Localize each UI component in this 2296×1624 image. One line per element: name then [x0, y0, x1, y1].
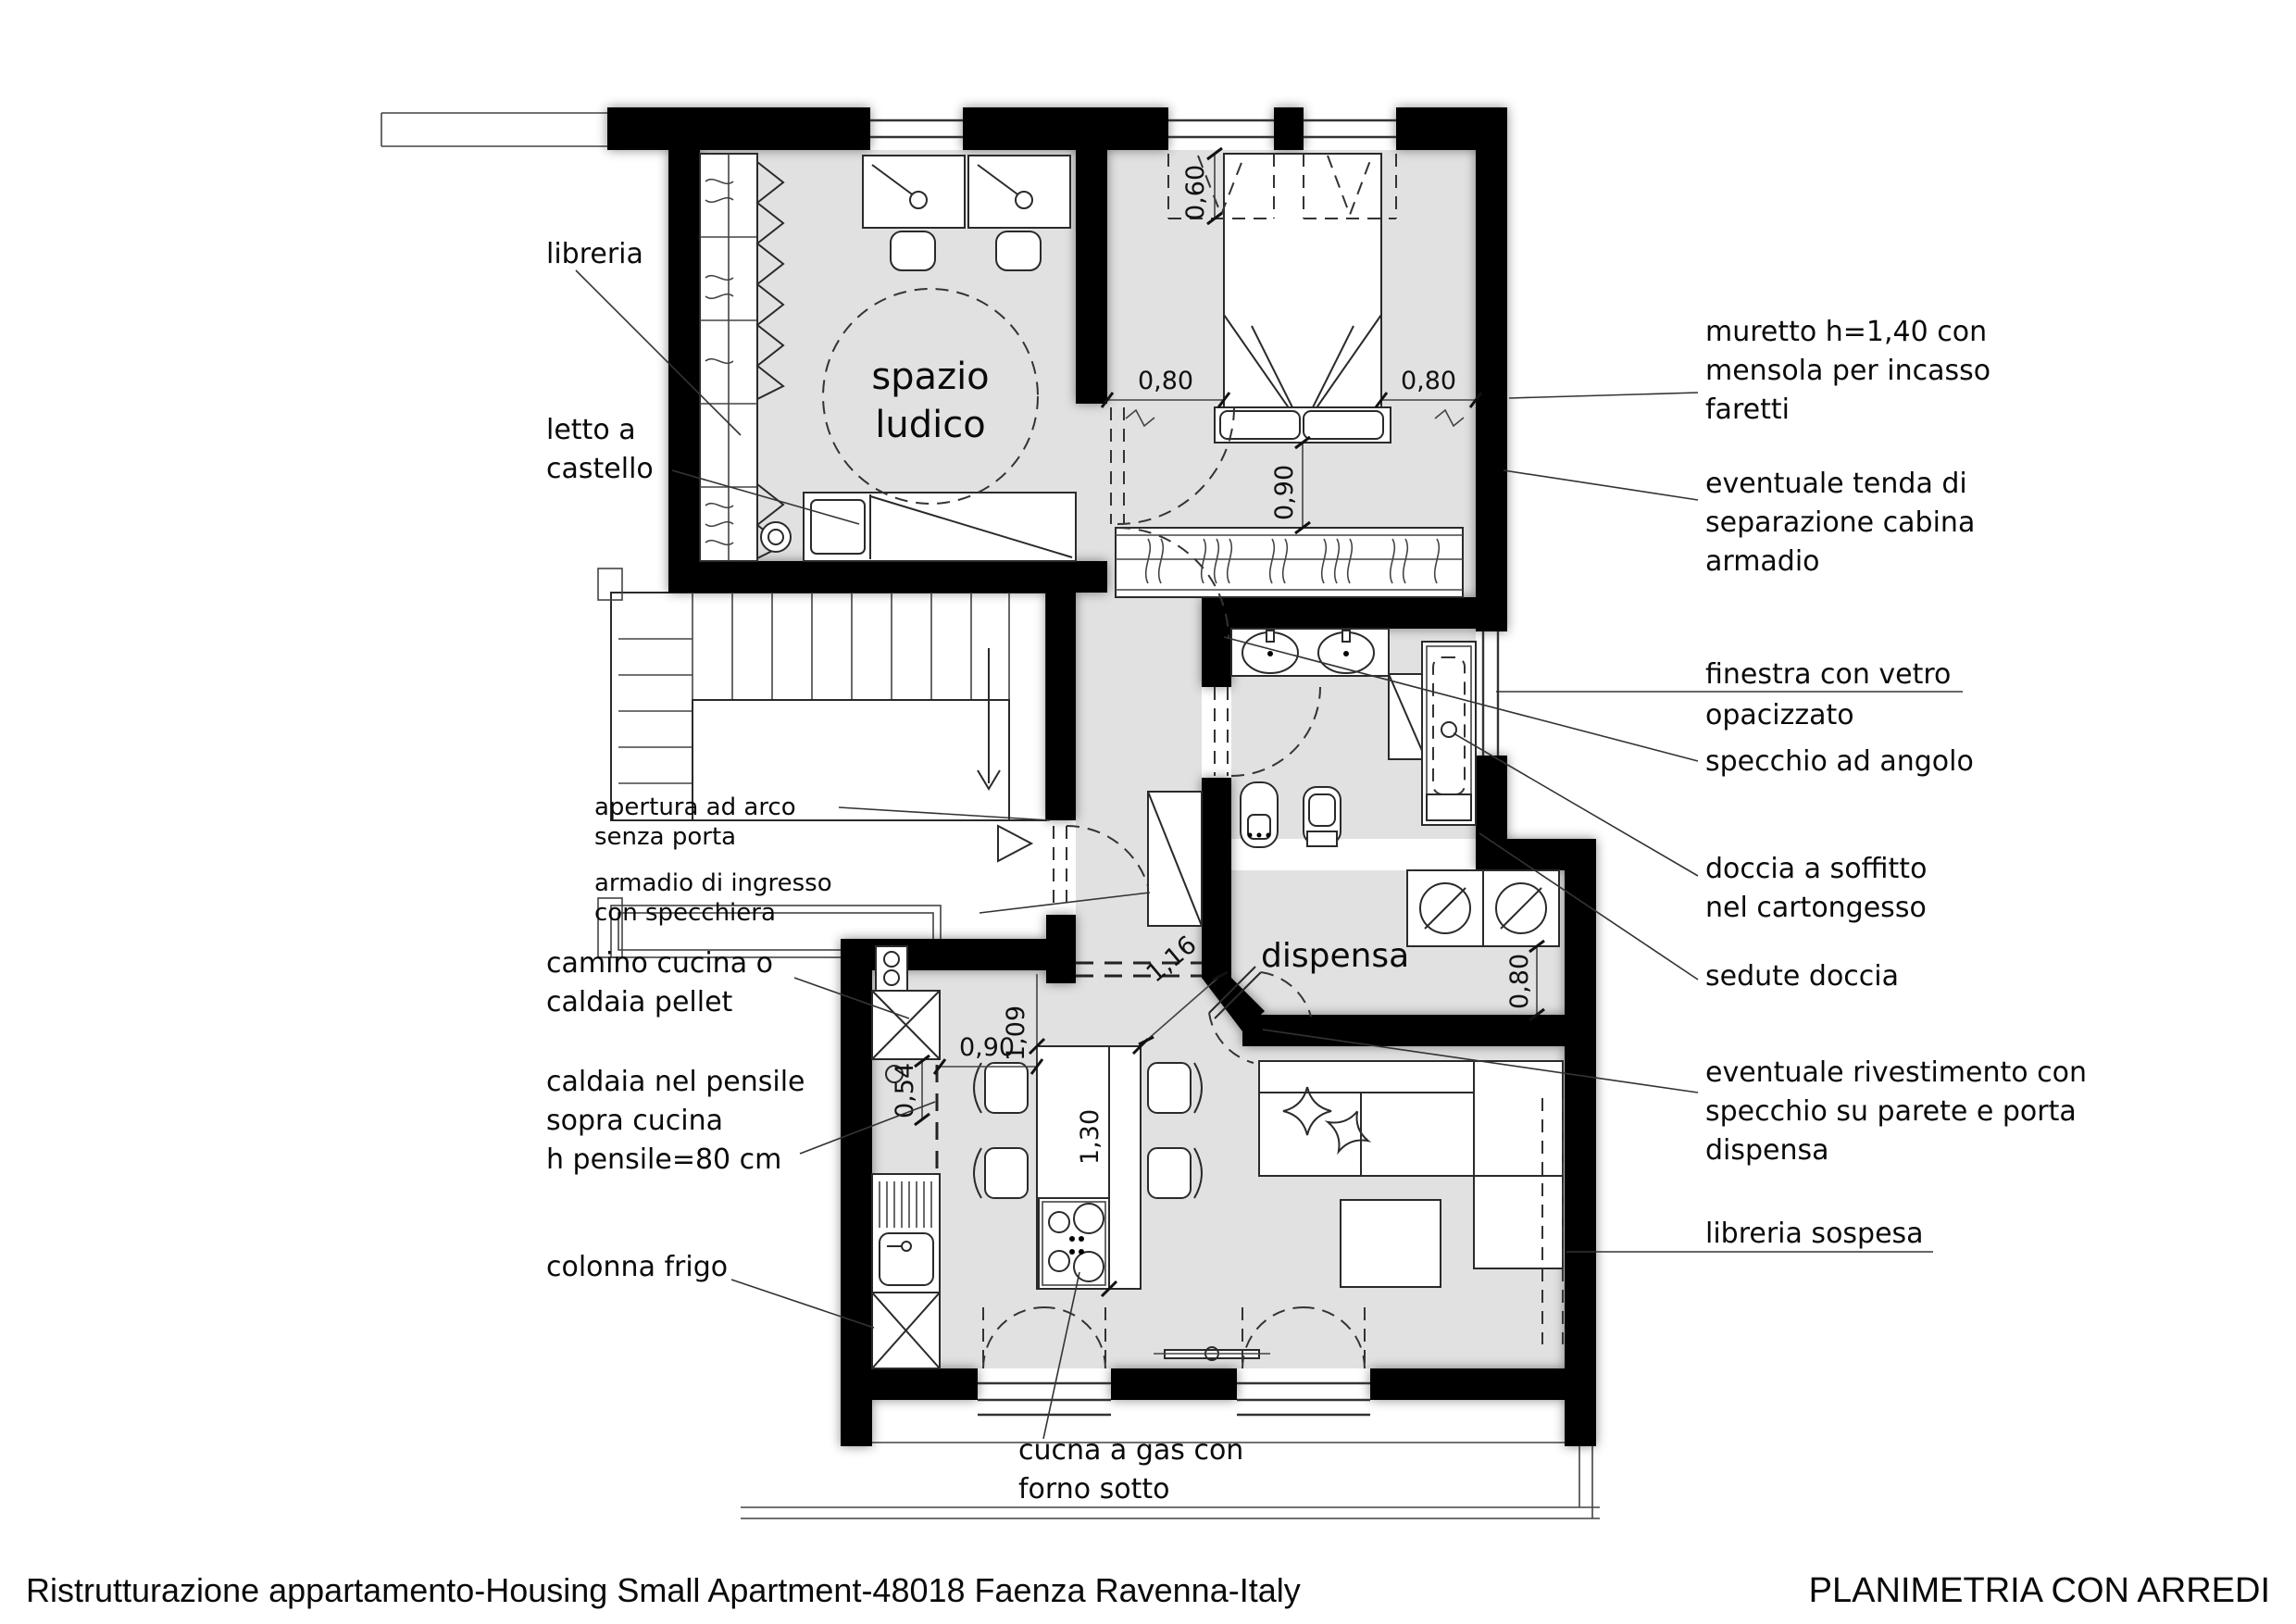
label-cucina-gas: forno sotto: [1018, 1473, 1170, 1505]
label-specchio: specchio ad angolo: [1705, 745, 1974, 778]
label-doccia: doccia a soffitto: [1705, 853, 1927, 885]
label-apertura-arco: senza porta: [594, 823, 736, 851]
desk: [863, 156, 965, 228]
label-doccia: nel cartongesso: [1705, 892, 1927, 924]
label-rivestimento: dispensa: [1705, 1134, 1829, 1167]
label-apertura-arco: apertura ad arco: [594, 793, 796, 821]
label-tenda: eventuale tenda di: [1705, 468, 1967, 500]
dim-060: 0,60: [1181, 165, 1210, 220]
room-label-spazio-ludico: spazio: [871, 356, 989, 398]
bunk-bed-pillow: [811, 500, 865, 554]
label-camino: camino cucina o: [546, 947, 773, 980]
dim-130: 1,30: [1076, 1109, 1104, 1165]
entrance-arrow-icon: [998, 826, 1031, 861]
label-libreria: libreria: [546, 238, 643, 270]
label-tenda: separazione cabina: [1705, 506, 1975, 539]
footer-project-title: Ristrutturazione appartamento-Housing Sm…: [26, 1571, 1301, 1609]
desk-lamp-icon: [1016, 192, 1032, 208]
hall-closet: [1148, 792, 1202, 926]
desk-lamp-icon: [910, 192, 927, 208]
double-bed: [1224, 154, 1381, 431]
label-armadio-ingresso: con specchiera: [594, 899, 776, 927]
label-sedute: sedute doccia: [1705, 960, 1899, 993]
floor-plan-drawing: 0,60 0,80 0,80 0,90 1,09 0,90 0,54 1,30 …: [0, 0, 2296, 1624]
dim-090-kitchen: 0,90: [959, 1033, 1015, 1062]
shower-seat: [1427, 794, 1471, 820]
label-muretto: faretti: [1705, 394, 1790, 426]
footer-drawing-title: PLANIMETRIA CON ARREDI: [1809, 1571, 2270, 1610]
flue-icon: [876, 946, 907, 991]
room-label-spazio-ludico: ludico: [875, 404, 985, 446]
label-finestra: finestra con vetro: [1705, 658, 1951, 691]
coffee-table: [1341, 1200, 1441, 1287]
label-rivestimento: specchio su parete e porta: [1705, 1095, 2077, 1128]
label-finestra: opacizzato: [1705, 699, 1854, 731]
label-caldaia: h pensile=80 cm: [546, 1143, 781, 1176]
lamp-icon: [761, 522, 791, 552]
label-camino: caldaia pellet: [546, 986, 733, 1018]
label-letto-castello: letto a: [546, 414, 636, 446]
dim-080-left: 0,80: [1138, 367, 1193, 395]
wardrobe: [1116, 528, 1463, 597]
chair: [996, 231, 1041, 270]
label-muretto: mensola per incasso: [1705, 355, 1990, 387]
floor-plan-page: 0,60 0,80 0,80 0,90 1,09 0,90 0,54 1,30 …: [0, 0, 2296, 1624]
gas-hob: [1039, 1198, 1109, 1289]
label-muretto: muretto h=1,40 con: [1705, 316, 1987, 348]
label-caldaia: sopra cucina: [546, 1105, 723, 1137]
label-cucina-gas: cucna a gas con: [1018, 1434, 1243, 1467]
title-block: Ristrutturazione appartamento-Housing Sm…: [26, 1571, 2270, 1610]
dim-090-bed: 0,90: [1270, 465, 1299, 520]
label-letto-castello: castello: [546, 453, 654, 485]
label-colonna-frigo: colonna frigo: [546, 1251, 728, 1283]
label-caldaia: caldaia nel pensile: [546, 1066, 805, 1098]
chair: [891, 231, 935, 270]
label-rivestimento: eventuale rivestimento con: [1705, 1056, 2087, 1089]
dim-080-dispensa: 0,80: [1505, 954, 1534, 1009]
room-label-dispensa: dispensa: [1261, 937, 1409, 975]
dim-080-right: 0,80: [1401, 367, 1456, 395]
label-tenda: armadio: [1705, 545, 1820, 578]
desk: [968, 156, 1070, 228]
label-armadio-ingresso: armadio di ingresso: [594, 869, 832, 897]
label-libreria-sospesa: libreria sospesa: [1705, 1218, 1924, 1250]
